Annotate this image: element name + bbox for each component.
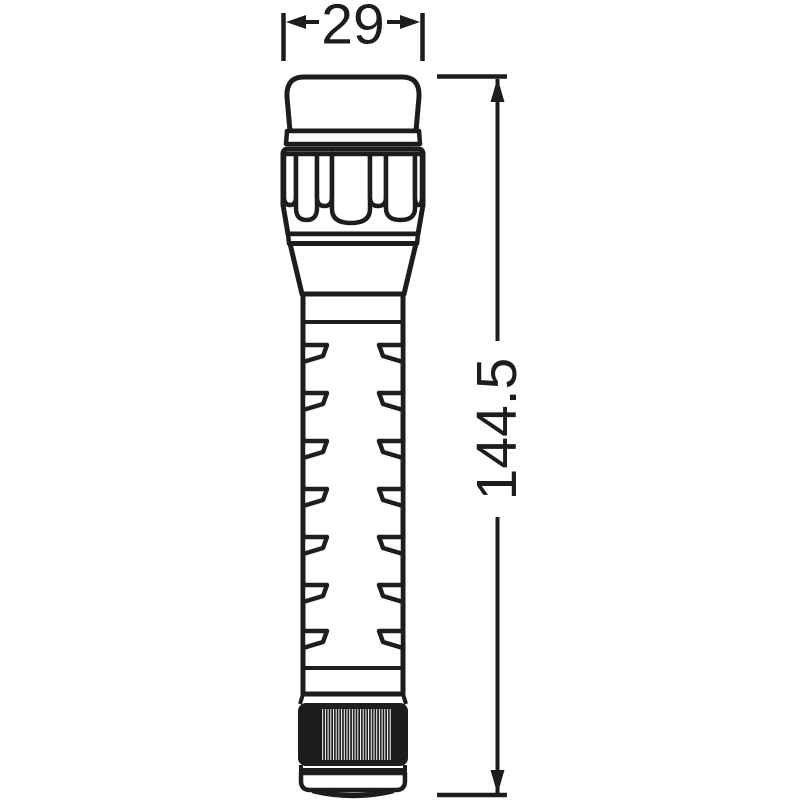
bezel-lobe	[370, 154, 386, 206]
bezel-lobe	[332, 154, 370, 223]
bezel-lobe	[415, 154, 422, 205]
arrow-up-icon	[491, 78, 505, 102]
arrow-left-icon	[286, 15, 306, 29]
head-band	[286, 131, 420, 144]
height-dimension-label: 144.5	[465, 358, 529, 501]
tail-connector-right	[403, 694, 406, 704]
width-dimension-label: 29	[321, 0, 384, 57]
neck-taper	[290, 244, 416, 295]
drawing-page: 29 144.5	[0, 0, 800, 800]
arrow-right-icon	[400, 15, 420, 29]
body-barrel	[303, 294, 403, 694]
arrow-down-icon	[491, 770, 505, 794]
tail-knurl-hatch	[321, 709, 391, 760]
width-dimension: 29	[284, 0, 423, 61]
technical-drawing-canvas: 29 144.5	[0, 0, 800, 800]
bezel-lobe	[386, 154, 415, 220]
height-dimension: 144.5	[437, 77, 529, 796]
bezel-lobe	[296, 154, 317, 220]
tail-cup	[301, 773, 405, 790]
tail-connector-left	[300, 694, 303, 704]
tail-cap	[298, 694, 408, 796]
head-cap	[287, 77, 419, 131]
bezel-knurled-ring	[283, 149, 423, 234]
flashlight-outline	[283, 77, 423, 796]
